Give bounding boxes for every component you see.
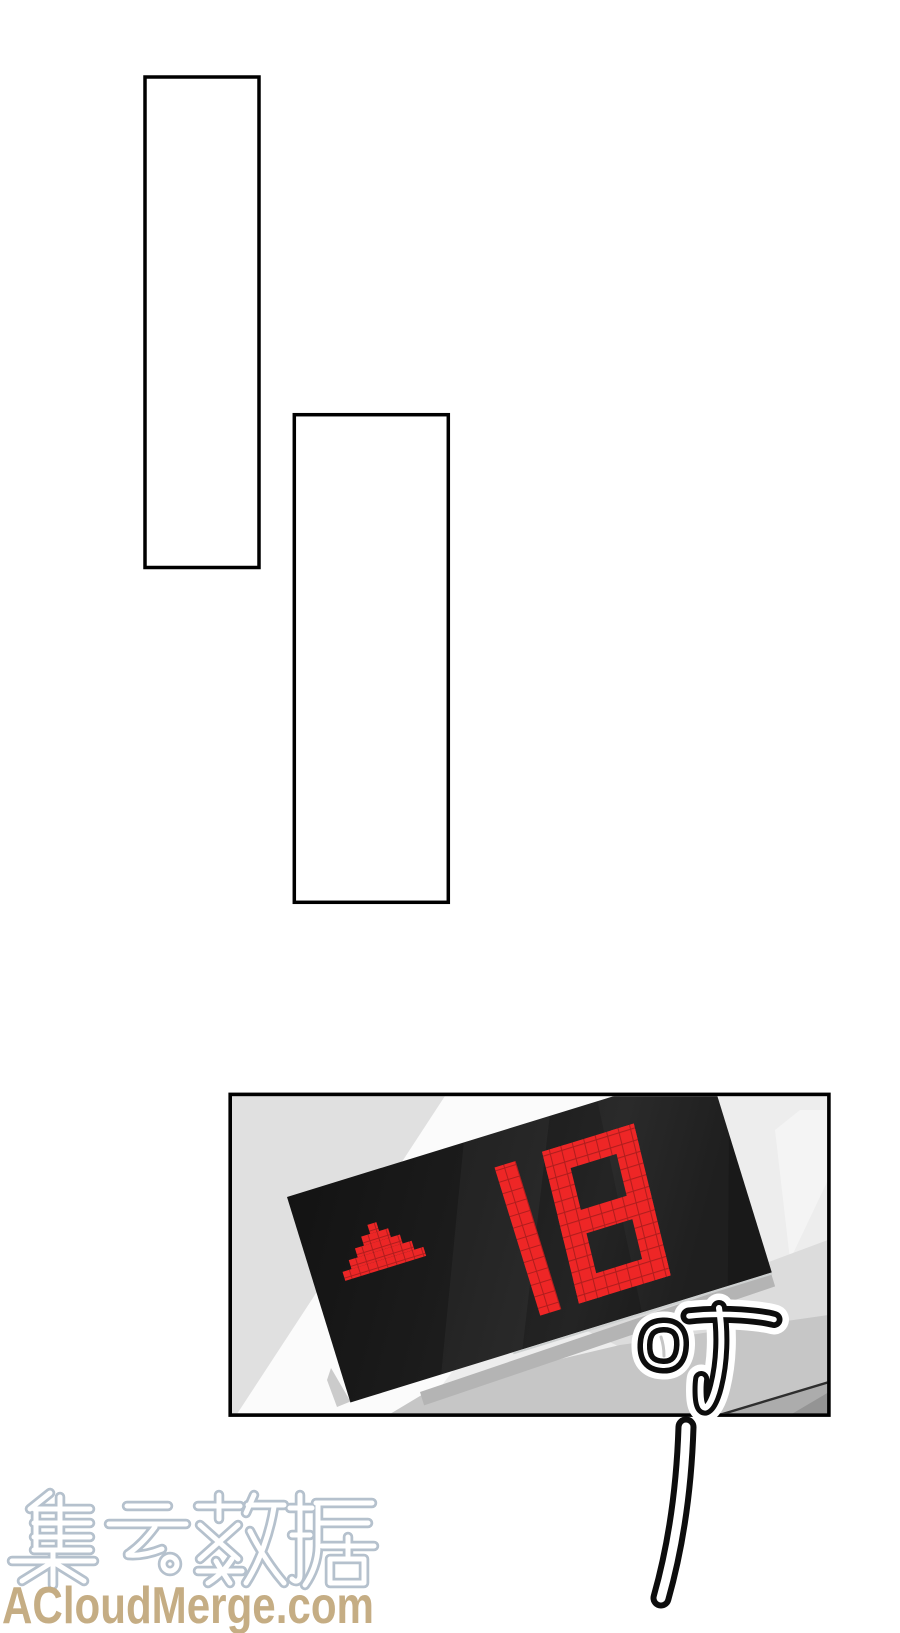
- svg-text:ACloudMerge.com: ACloudMerge.com: [2, 1577, 374, 1633]
